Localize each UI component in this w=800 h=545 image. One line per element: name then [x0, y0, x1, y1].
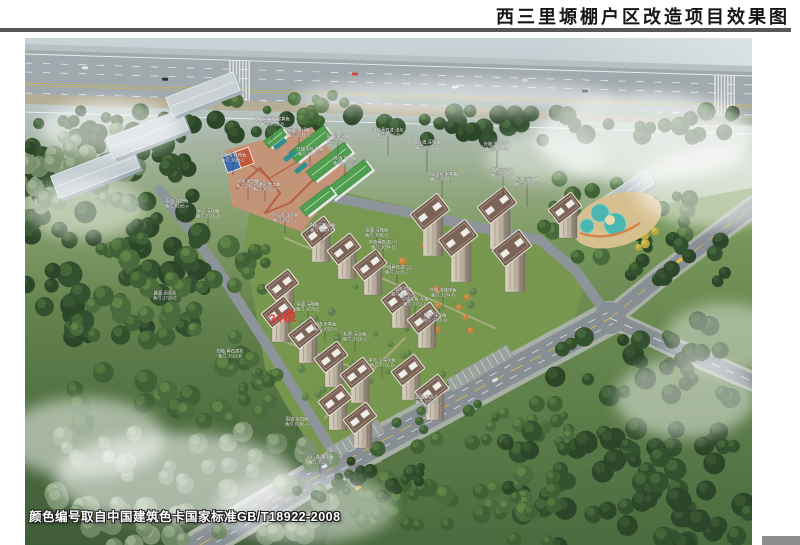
rendering-canvas: 幼儿园外墙:暖黄色色号:1012-B屋面:果绿色色号:2258-C外墙涂料:白色… — [25, 38, 752, 545]
color-callout: 围墙:灰白色色号:0205-A — [165, 198, 189, 210]
color-callout: 单元门:深灰色色号:2716-D — [369, 357, 397, 369]
color-callout: 外墙:米白色色号:0911-A — [236, 178, 260, 190]
color-callout: 外墙:浅咖啡色色号:1274-B — [430, 287, 458, 299]
bottom-right-gray-box — [762, 536, 800, 545]
color-callout: 路面:沥青灰色号:2720-E — [153, 290, 177, 302]
color-callout: 栏杆:深灰色色号:2718-C — [515, 176, 539, 188]
color-callout: 人行道:浅灰色色号:2513-A — [272, 212, 300, 224]
color-callout: 人行道:浅灰色色号:2513-B — [307, 454, 335, 466]
color-callout: 栏杆:深灰色色号:2718-C — [343, 331, 367, 343]
title-divider — [0, 28, 791, 32]
page-title: 西三里塬棚户区改造项目效果图 — [496, 3, 790, 29]
color-callout: 挡墙:真石漆灰色号:2613-B — [217, 348, 245, 360]
color-callout: 外墙真石漆(一)色号:1034-B — [369, 239, 398, 251]
color-callout: 空调栏板:灰色色号:2712-C — [402, 296, 430, 308]
color-callout: 外墙涂料:白色色号:0101-A — [297, 146, 325, 158]
slide-page: 西三里塬棚户区改造项目效果图 — [0, 0, 800, 545]
color-callout: 外墙:米黄色色号:1033-A — [313, 321, 337, 333]
aerial-rendering: 幼儿园外墙:暖黄色色号:1012-B屋面:果绿色色号:2258-C外墙涂料:白色… — [25, 38, 752, 545]
color-callout: 外墙:浅咖啡色色号:1275-B — [484, 141, 512, 153]
color-standard-note: 颜色编号取自中国建筑色卡国家标准GB/T18922-2008 — [29, 506, 341, 525]
color-callout: 外墙:米白色色号:0912-A — [333, 155, 357, 167]
color-callout: 大门:深灰色色号:2715-D — [196, 208, 220, 220]
color-callout: 窗框:深灰色色号:2719-D — [491, 167, 515, 179]
color-callout: 道路:沥青灰色号:2720-E — [415, 394, 439, 406]
color-callout: 屋面:果绿色色号:2260-B — [326, 133, 350, 145]
color-callout: 外墙真石漆(二)色号:1275-C — [383, 264, 412, 276]
color-callout: 屋面:深咖色色号:1680-E — [365, 227, 389, 239]
color-callout: 道路沿石:灰色色号:2514-B — [309, 222, 337, 234]
color-callout: 女儿墙:深咖色色号:1679-D — [414, 139, 442, 151]
color-callout: 外墙真石漆:浅灰色号:2712-B — [372, 127, 404, 139]
color-callout: 透水砖:红褐色色号:1818-C — [220, 152, 248, 164]
color-callout: 外墙涂料:米黄色色号:1034-A — [426, 171, 458, 183]
color-callout: 窗框:深灰色色号:2719-D — [423, 312, 447, 324]
color-callout: 屋面:果绿色色号:2258-C — [287, 127, 311, 139]
color-callout: 围墙:灰白色色号:0206-A — [285, 416, 309, 428]
color-callout: 屋面:深咖色色号:1679-E — [296, 301, 320, 313]
